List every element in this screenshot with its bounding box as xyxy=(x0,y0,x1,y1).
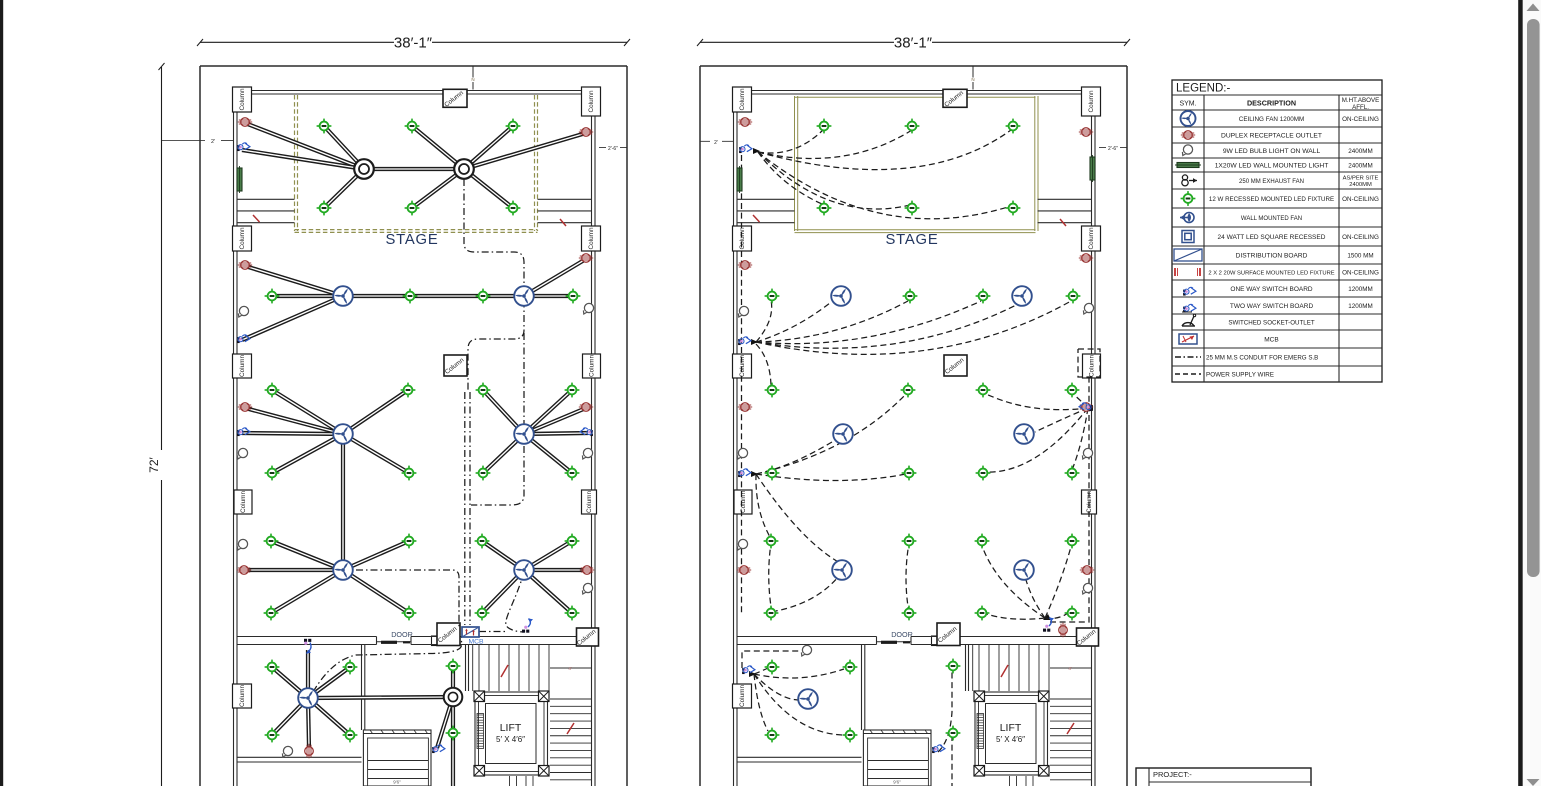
svg-text:AFFL.: AFFL. xyxy=(1352,104,1369,111)
svg-text:Column: Column xyxy=(1088,227,1095,249)
svg-text:STAGE: STAGE xyxy=(385,232,438,248)
svg-text:2′: 2′ xyxy=(714,140,718,146)
svg-text:Column: Column xyxy=(1088,90,1095,112)
svg-text:Column: Column xyxy=(739,88,746,110)
svg-text:ON-CEILING: ON-CEILING xyxy=(1342,269,1379,276)
svg-text:2 X 2 20W SURFACE MOUNTED LED: 2 X 2 20W SURFACE MOUNTED LED FIXTURE xyxy=(1208,270,1334,276)
svg-text:ON-CEILING: ON-CEILING xyxy=(1342,116,1379,123)
svg-text:SYM.: SYM. xyxy=(1179,101,1196,108)
svg-text:CEILING FAN 1200MM: CEILING FAN 1200MM xyxy=(1239,116,1304,123)
svg-text:9′6″: 9′6″ xyxy=(393,780,401,785)
svg-text:PROJECT:-: PROJECT:- xyxy=(1153,770,1192,779)
svg-text:72′: 72′ xyxy=(147,456,161,472)
svg-text:38′-1″: 38′-1″ xyxy=(394,35,433,52)
svg-text:DOOR: DOOR xyxy=(891,630,913,639)
svg-text:WALL MOUNTED FAN: WALL MOUNTED FAN xyxy=(1241,216,1302,222)
svg-text:N: N xyxy=(971,77,974,82)
svg-text:Column: Column xyxy=(239,227,246,249)
svg-text:LIFT: LIFT xyxy=(1000,722,1022,734)
svg-text:DESCRIPTION: DESCRIPTION xyxy=(1247,99,1296,108)
svg-text:2400MM: 2400MM xyxy=(1348,148,1373,155)
svg-text:ON-CEILING: ON-CEILING xyxy=(1342,234,1379,241)
svg-text:Column: Column xyxy=(239,355,246,377)
svg-text:ONE WAY SWITCH BOARD: ONE WAY SWITCH BOARD xyxy=(1230,286,1313,293)
svg-text:1500 MM: 1500 MM xyxy=(1347,252,1373,259)
svg-text:2400MM: 2400MM xyxy=(1348,162,1373,169)
svg-text:24 WATT LED SQUARE RECESSED: 24 WATT LED SQUARE RECESSED xyxy=(1218,234,1326,241)
svg-text:38′-1″: 38′-1″ xyxy=(894,35,933,52)
svg-text:1200MM: 1200MM xyxy=(1348,286,1373,293)
svg-text:2′-6″: 2′-6″ xyxy=(1108,146,1118,152)
svg-text:9W LED BULB LIGHT ON WALL: 9W LED BULB LIGHT ON WALL xyxy=(1223,148,1321,155)
svg-text:MCB: MCB xyxy=(468,639,484,646)
svg-text:POWER SUPPLY WIRE: POWER SUPPLY WIRE xyxy=(1206,371,1274,378)
svg-text:TWO WAY SWITCH BOARD: TWO WAY SWITCH BOARD xyxy=(1230,303,1314,310)
svg-text:MCB: MCB xyxy=(1264,336,1278,343)
svg-text:1200MM: 1200MM xyxy=(1348,303,1373,310)
svg-text:25 MM M.S CONDUIT FOR EMERG S.: 25 MM M.S CONDUIT FOR EMERG S.B xyxy=(1206,354,1318,361)
svg-text:DUPLEX RECEPTACLE OUTLET: DUPLEX RECEPTACLE OUTLET xyxy=(1221,132,1322,139)
svg-text:4′: 4′ xyxy=(568,666,572,671)
svg-text:2′: 2′ xyxy=(211,139,215,145)
svg-text:SWITCHED SOCKET-OUTLET: SWITCHED SOCKET-OUTLET xyxy=(1228,319,1315,326)
svg-text:2400MM: 2400MM xyxy=(1349,182,1372,188)
svg-text:Column: Column xyxy=(1089,355,1096,377)
svg-text:Column: Column xyxy=(588,90,595,112)
svg-text:5′ X 4′6″: 5′ X 4′6″ xyxy=(496,735,525,744)
svg-text:Column: Column xyxy=(739,227,746,249)
svg-text:Column: Column xyxy=(239,685,246,707)
svg-text:Column: Column xyxy=(739,685,746,707)
svg-text:AS/PER SITE: AS/PER SITE xyxy=(1343,176,1379,182)
svg-text:250 MM EXHAUST FAN: 250 MM EXHAUST FAN xyxy=(1239,179,1304,185)
svg-text:Column: Column xyxy=(586,491,593,513)
svg-text:ON-CEILING: ON-CEILING xyxy=(1342,196,1379,203)
svg-text:LEGEND:-: LEGEND:- xyxy=(1176,83,1230,95)
svg-text:5′ X 4′6″: 5′ X 4′6″ xyxy=(996,735,1025,744)
svg-text:Column: Column xyxy=(239,88,246,110)
svg-text:DOOR: DOOR xyxy=(391,630,413,639)
svg-text:DISTRIBUTION BOARD: DISTRIBUTION BOARD xyxy=(1236,252,1308,259)
svg-text:LIFT: LIFT xyxy=(500,722,522,734)
svg-text:Column: Column xyxy=(588,227,595,249)
svg-text:2′-6″: 2′-6″ xyxy=(608,146,618,152)
svg-text:1X20W LED WALL MOUNTED LIGHT: 1X20W LED WALL MOUNTED LIGHT xyxy=(1215,162,1329,169)
svg-text:N: N xyxy=(471,77,474,82)
svg-text:Column: Column xyxy=(739,355,746,377)
svg-text:Column: Column xyxy=(589,355,596,377)
svg-text:Column: Column xyxy=(240,491,247,513)
svg-text:4′: 4′ xyxy=(1068,666,1072,671)
svg-text:STAGE: STAGE xyxy=(885,232,938,248)
svg-text:9′6″: 9′6″ xyxy=(893,780,901,785)
svg-text:12 W RECESSED MOUNTED LED FIXT: 12 W RECESSED MOUNTED LED FIXTURE xyxy=(1209,196,1334,203)
